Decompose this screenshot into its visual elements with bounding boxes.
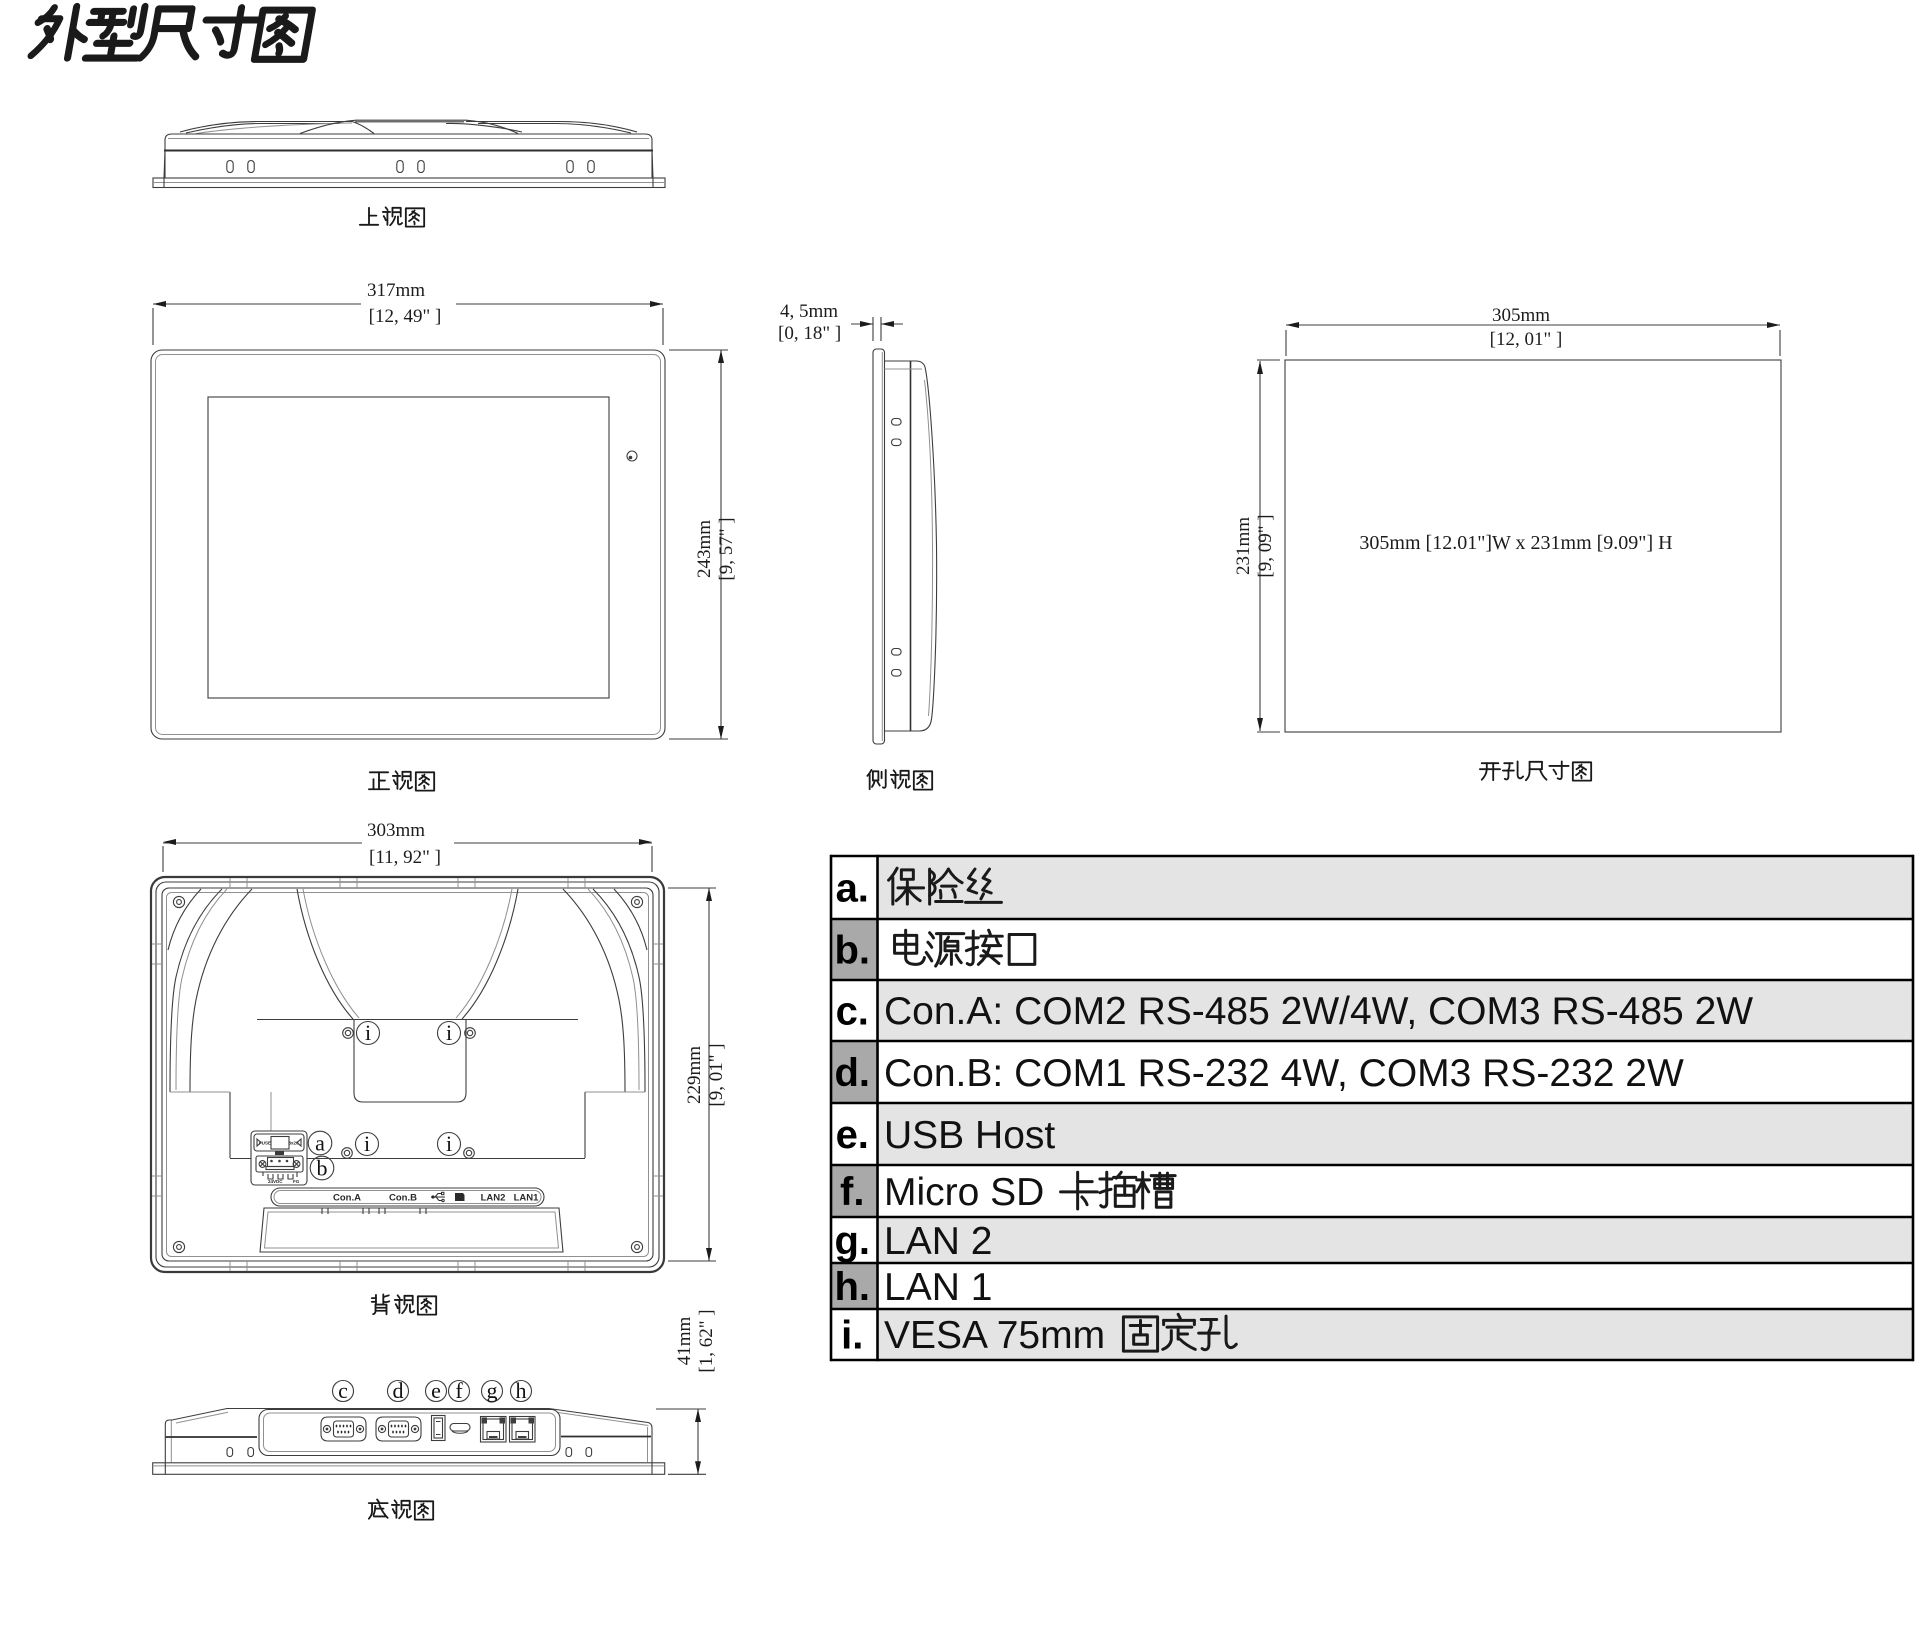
svg-text:i.: i. <box>841 1314 863 1358</box>
svg-text:LAN1: LAN1 <box>514 1193 540 1204</box>
svg-text:[12, 01" ]: [12, 01" ] <box>1490 329 1563 350</box>
svg-text:e.: e. <box>836 1113 869 1157</box>
svg-text:d: d <box>393 1378 404 1403</box>
svg-text:4, 5mm: 4, 5mm <box>780 301 838 322</box>
svg-text:Con.A: Con.A <box>333 1193 361 1204</box>
svg-text:g: g <box>487 1378 498 1403</box>
svg-text:LAN2: LAN2 <box>481 1193 506 1204</box>
svg-text:[11, 92" ]: [11, 92" ] <box>369 847 441 868</box>
svg-text:[9, 09" ]: [9, 09" ] <box>1255 514 1276 577</box>
svg-text:a: a <box>315 1131 325 1156</box>
svg-text:h.: h. <box>834 1265 870 1309</box>
svg-text:e: e <box>431 1378 441 1403</box>
svg-text:g.: g. <box>834 1219 870 1263</box>
svg-text:c: c <box>338 1378 348 1403</box>
svg-text:i: i <box>446 1020 452 1045</box>
svg-text:41mm: 41mm <box>674 1317 695 1366</box>
svg-text:24VDC: 24VDC <box>268 1179 283 1184</box>
svg-text:i: i <box>446 1131 452 1156</box>
svg-text:[9, 01" ]: [9, 01" ] <box>706 1043 727 1106</box>
svg-text:Con.A: COM2 RS-485 2W/4W, COM3: Con.A: COM2 RS-485 2W/4W, COM3 RS-485 2W <box>884 990 1753 1033</box>
svg-text:305mm: 305mm <box>1492 305 1550 326</box>
svg-text:231mm: 231mm <box>1233 517 1254 575</box>
svg-text:229mm: 229mm <box>684 1046 705 1104</box>
svg-text:[0, 18" ]: [0, 18" ] <box>778 323 841 344</box>
svg-text:305mm [12.01"]W x 231mm [9.09": 305mm [12.01"]W x 231mm [9.09"] H <box>1359 532 1672 554</box>
svg-text:i: i <box>364 1131 370 1156</box>
svg-text:LAN 2: LAN 2 <box>884 1220 992 1263</box>
svg-text:303mm: 303mm <box>367 820 425 841</box>
svg-text:243mm: 243mm <box>694 520 715 578</box>
svg-text:8x20: 8x20 <box>288 1141 299 1146</box>
svg-text:c.: c. <box>836 990 869 1034</box>
svg-text:d.: d. <box>834 1051 870 1095</box>
svg-text:Con.B: COM1 RS-232 4W, COM3 RS: Con.B: COM1 RS-232 4W, COM3 RS-232 2W <box>884 1052 1684 1095</box>
svg-text:FG: FG <box>293 1179 300 1184</box>
svg-text:[12, 49" ]: [12, 49" ] <box>369 306 442 327</box>
svg-text:[1, 62" ]: [1, 62" ] <box>696 1309 717 1372</box>
svg-text:h: h <box>516 1378 527 1403</box>
svg-text:b.: b. <box>834 929 870 973</box>
svg-text:FUSE: FUSE <box>259 1141 271 1146</box>
svg-text:b: b <box>317 1156 328 1181</box>
svg-text:LAN 1: LAN 1 <box>884 1266 992 1309</box>
svg-text:f: f <box>455 1378 463 1403</box>
svg-text:[9, 57" ]: [9, 57" ] <box>716 517 737 580</box>
svg-text:Con.B: Con.B <box>389 1193 417 1204</box>
svg-text:317mm: 317mm <box>367 280 425 301</box>
svg-text:a.: a. <box>836 867 869 911</box>
svg-text:VESA 75mm: VESA 75mm <box>884 1314 1105 1357</box>
svg-text:i: i <box>365 1020 371 1045</box>
svg-text:USB Host: USB Host <box>884 1114 1055 1157</box>
svg-text:Micro SD: Micro SD <box>884 1171 1044 1214</box>
svg-text:f.: f. <box>840 1170 864 1214</box>
